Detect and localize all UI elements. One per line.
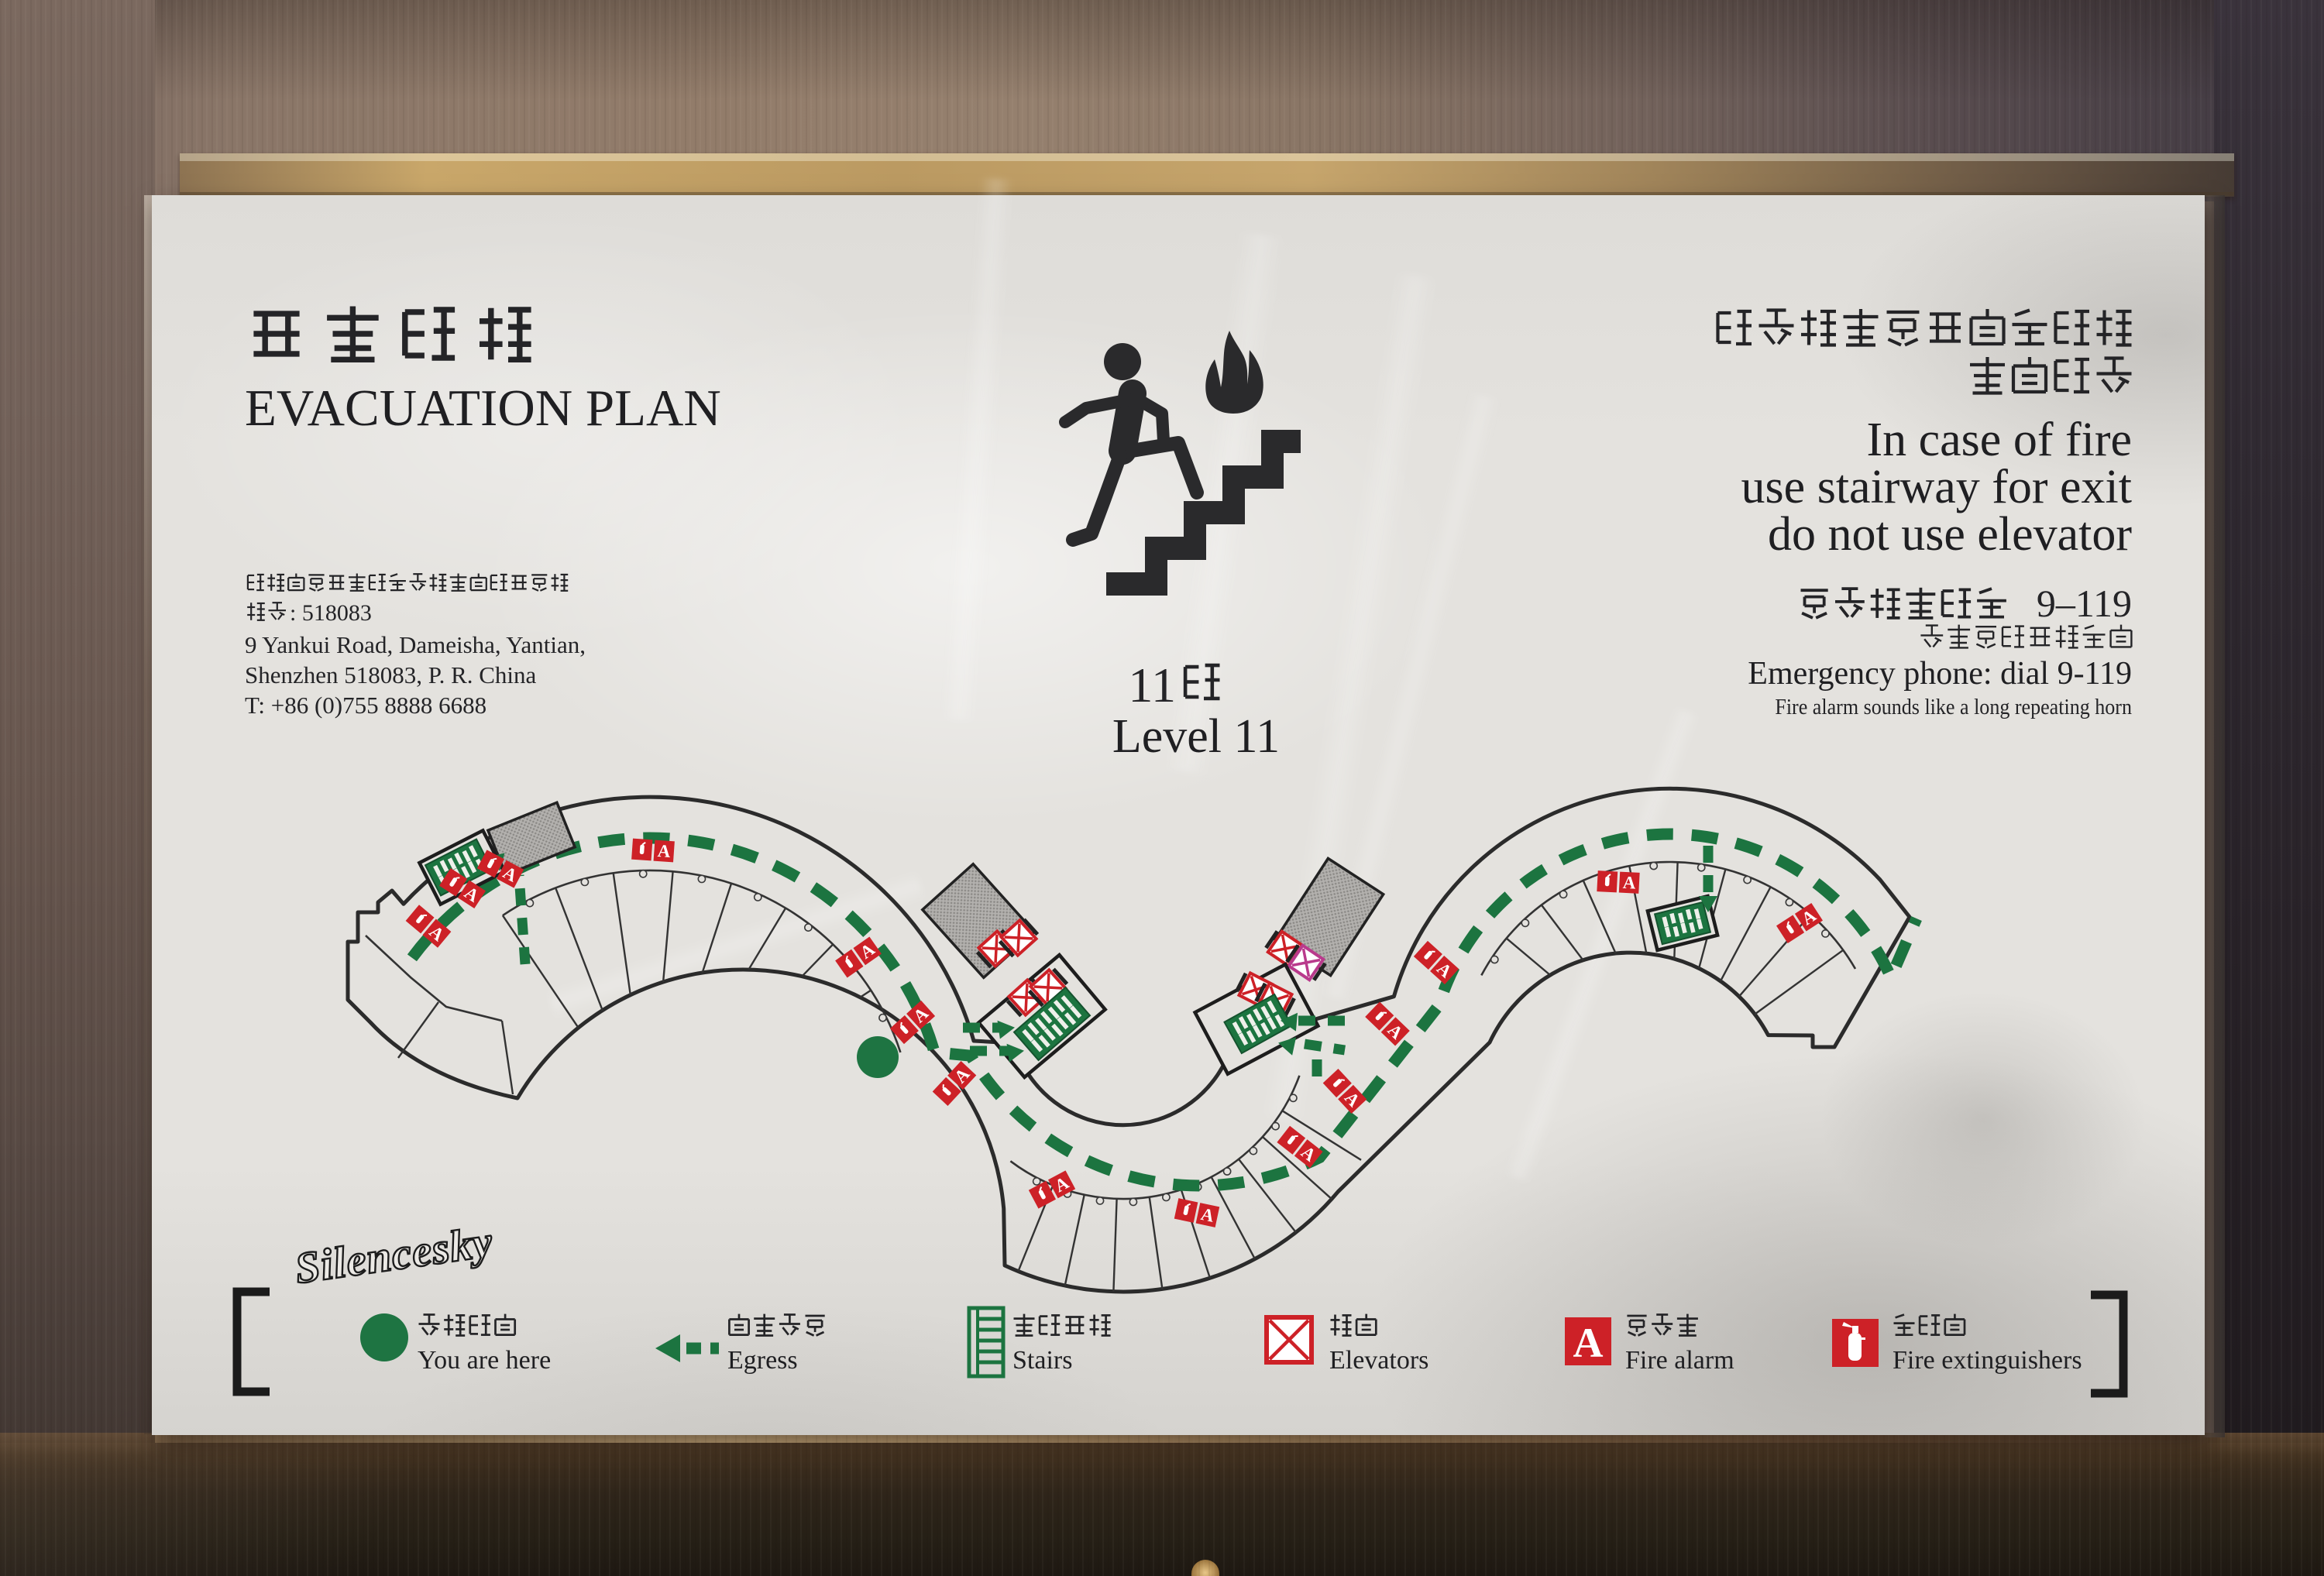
svg-text:A: A	[1341, 1088, 1364, 1111]
svg-text:Silencesky: Silencesky	[292, 1217, 496, 1293]
svg-text:A: A	[857, 939, 878, 963]
svg-text:9–119: 9–119	[2037, 582, 2132, 625]
svg-text:A: A	[951, 1064, 974, 1087]
svg-text:11: 11	[1128, 658, 1176, 712]
svg-text:: 518083: : 518083	[290, 600, 372, 626]
svg-text:A: A	[1573, 1320, 1604, 1366]
svg-text:A: A	[1384, 1020, 1408, 1043]
svg-text:A: A	[1622, 873, 1636, 893]
svg-text:A: A	[657, 841, 672, 861]
